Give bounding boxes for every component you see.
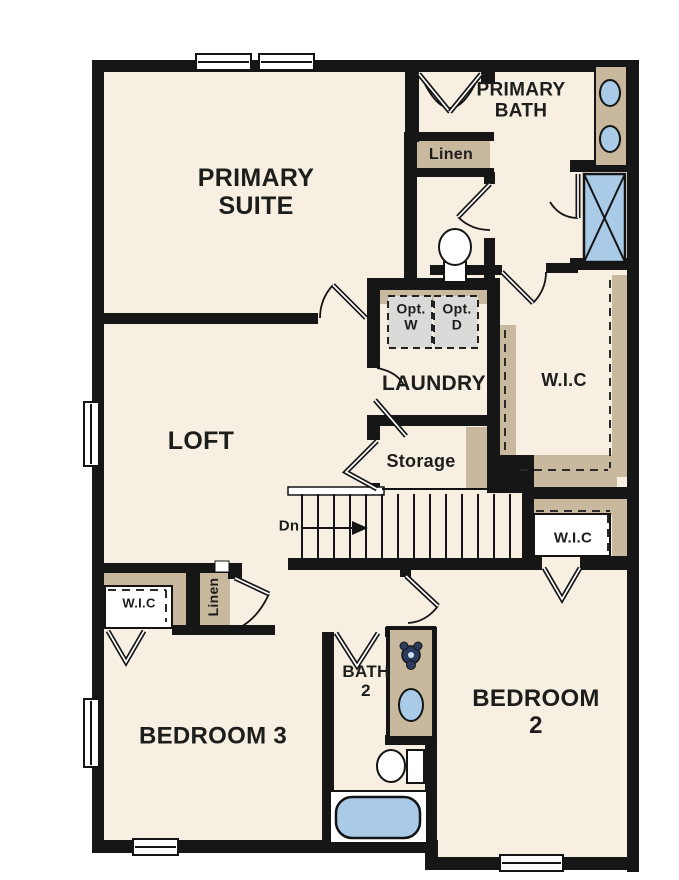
door-leaves [108,74,580,666]
plan-linework [0,0,679,880]
stairs-label-dn: Dn [279,519,300,536]
toilet-icon [377,750,424,783]
shower-icon [584,174,625,262]
room-label-bedroom3: BEDROOM 3 [139,724,287,751]
closet-label-wic-bedroom3: W.I.C [122,597,155,612]
room-label-bedroom2: BEDROOM 2 [465,686,608,740]
closet-label-linen-hall: Linen [206,578,222,617]
sink-icon [399,689,423,721]
appliance-label-dryer: Opt. D [442,301,471,332]
room-label-primary-bath: PRIMARY BATH [476,80,565,123]
door-arcs [239,76,578,628]
stairs [288,487,526,558]
room-label-storage: Storage [386,451,455,471]
closet-label-wic-hall: W.I.C [554,531,592,548]
appliance-label-washer: Opt. W [396,301,425,332]
bathtub-icon [330,791,427,843]
room-label-primary-suite: PRIMARY SUITE [198,164,314,220]
floor-plan: PRIMARY SUITE PRIMARY BATH Linen Opt. W … [0,0,679,880]
room-label-loft: LOFT [168,427,234,455]
closet-label-linen-primary: Linen [429,146,473,164]
room-label-laundry: LAUNDRY [382,372,486,396]
closet-label-wic-primary: W.I.C [541,370,587,390]
toilet-icon [439,229,471,282]
room-label-bath2: BATH 2 [342,662,389,700]
